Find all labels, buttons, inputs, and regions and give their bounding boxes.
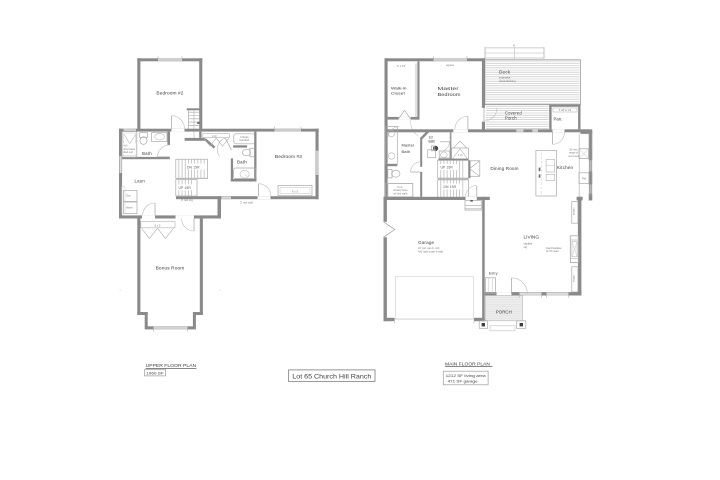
svg-text:1212 SF living area: 1212 SF living area bbox=[446, 374, 487, 378]
svg-text:Pan.: Pan. bbox=[554, 117, 563, 122]
svg-text:Lot 65 Church Hill Ranch: Lot 65 Church Hill Ranch bbox=[292, 373, 372, 380]
svg-text:5 shlf w/ rod: 5 shlf w/ rod bbox=[559, 109, 572, 112]
svg-text:tiled surr: tiled surr bbox=[123, 150, 133, 154]
svg-text:Dry: Dry bbox=[126, 194, 131, 198]
svg-text:6 x 5: 6 x 5 bbox=[155, 223, 161, 227]
svg-text:4x6' light at gar 4 walls: 4x6' light at gar 4 walls bbox=[418, 251, 444, 254]
svg-text:clg: clg bbox=[524, 245, 528, 249]
svg-text:w/ 3'h mant: w/ 3'h mant bbox=[546, 250, 559, 253]
svg-text:Bedroom #3: Bedroom #3 bbox=[275, 154, 302, 160]
svg-text:Porch: Porch bbox=[505, 116, 517, 121]
svg-text:6 x 5: 6 x 5 bbox=[292, 189, 299, 193]
svg-text:UP 15R: UP 15R bbox=[441, 166, 454, 170]
svg-text:LIVING: LIVING bbox=[524, 235, 540, 241]
svg-text:Dining Room: Dining Room bbox=[490, 166, 518, 171]
svg-text:1 sh: 1 sh bbox=[458, 154, 463, 157]
svg-text:vent hood: vent hood bbox=[568, 155, 579, 158]
svg-text:Entry: Entry bbox=[489, 272, 498, 276]
svg-text:Bath: Bath bbox=[142, 151, 152, 156]
svg-text:PORCH: PORCH bbox=[496, 309, 512, 314]
svg-text:cabinet: cabinet bbox=[572, 275, 575, 283]
svg-text:vaulted: vaulted bbox=[524, 242, 533, 246]
svg-text:UPPER FLOOR PLAN: UPPER FLOOR PLAN bbox=[146, 363, 197, 368]
svg-text:Laun: Laun bbox=[135, 179, 146, 184]
svg-text:wood decking: wood decking bbox=[499, 79, 516, 83]
svg-text:MAIN FLOOR PLAN: MAIN FLOOR PLAN bbox=[445, 361, 490, 366]
svg-text:Bath: Bath bbox=[237, 160, 247, 165]
svg-text:Bonus Room: Bonus Room bbox=[156, 266, 185, 272]
svg-text:5'-1 3/4": 5'-1 3/4" bbox=[397, 65, 406, 68]
svg-text:Closet: Closet bbox=[391, 91, 406, 96]
svg-text:Bath: Bath bbox=[402, 149, 411, 154]
svg-text:w/ tiled walls: w/ tiled walls bbox=[393, 192, 408, 195]
svg-text:4 sh: 4 sh bbox=[212, 134, 217, 138]
svg-text:egress: egress bbox=[446, 63, 455, 67]
svg-text:2' wd wall: 2' wd wall bbox=[240, 201, 253, 205]
svg-text:Wash: Wash bbox=[126, 206, 133, 210]
svg-text:Ref: Ref bbox=[582, 177, 586, 181]
svg-text:Master: Master bbox=[402, 142, 415, 147]
svg-text:Garage: Garage bbox=[418, 240, 435, 245]
svg-text:DN 15R: DN 15R bbox=[444, 185, 457, 189]
svg-text:Bath: Bath bbox=[429, 140, 436, 144]
svg-text:Master: Master bbox=[438, 86, 460, 92]
svg-text:Bedroom: Bedroom bbox=[438, 92, 461, 98]
svg-text:1060 SF: 1060 SF bbox=[146, 371, 164, 376]
svg-text:handrail: handrail bbox=[240, 138, 250, 142]
svg-text:UP 15R: UP 15R bbox=[179, 186, 192, 190]
svg-text:Bedroom #2: Bedroom #2 bbox=[156, 91, 183, 97]
svg-text:471 SF garage: 471 SF garage bbox=[448, 380, 478, 384]
svg-text:Deck: Deck bbox=[499, 70, 511, 75]
svg-text:9' std clg: 9' std clg bbox=[181, 198, 193, 202]
svg-text:cabinet: cabinet bbox=[572, 208, 575, 216]
svg-text:Kitchen: Kitchen bbox=[557, 165, 574, 170]
svg-text:DN 15R: DN 15R bbox=[187, 165, 200, 169]
